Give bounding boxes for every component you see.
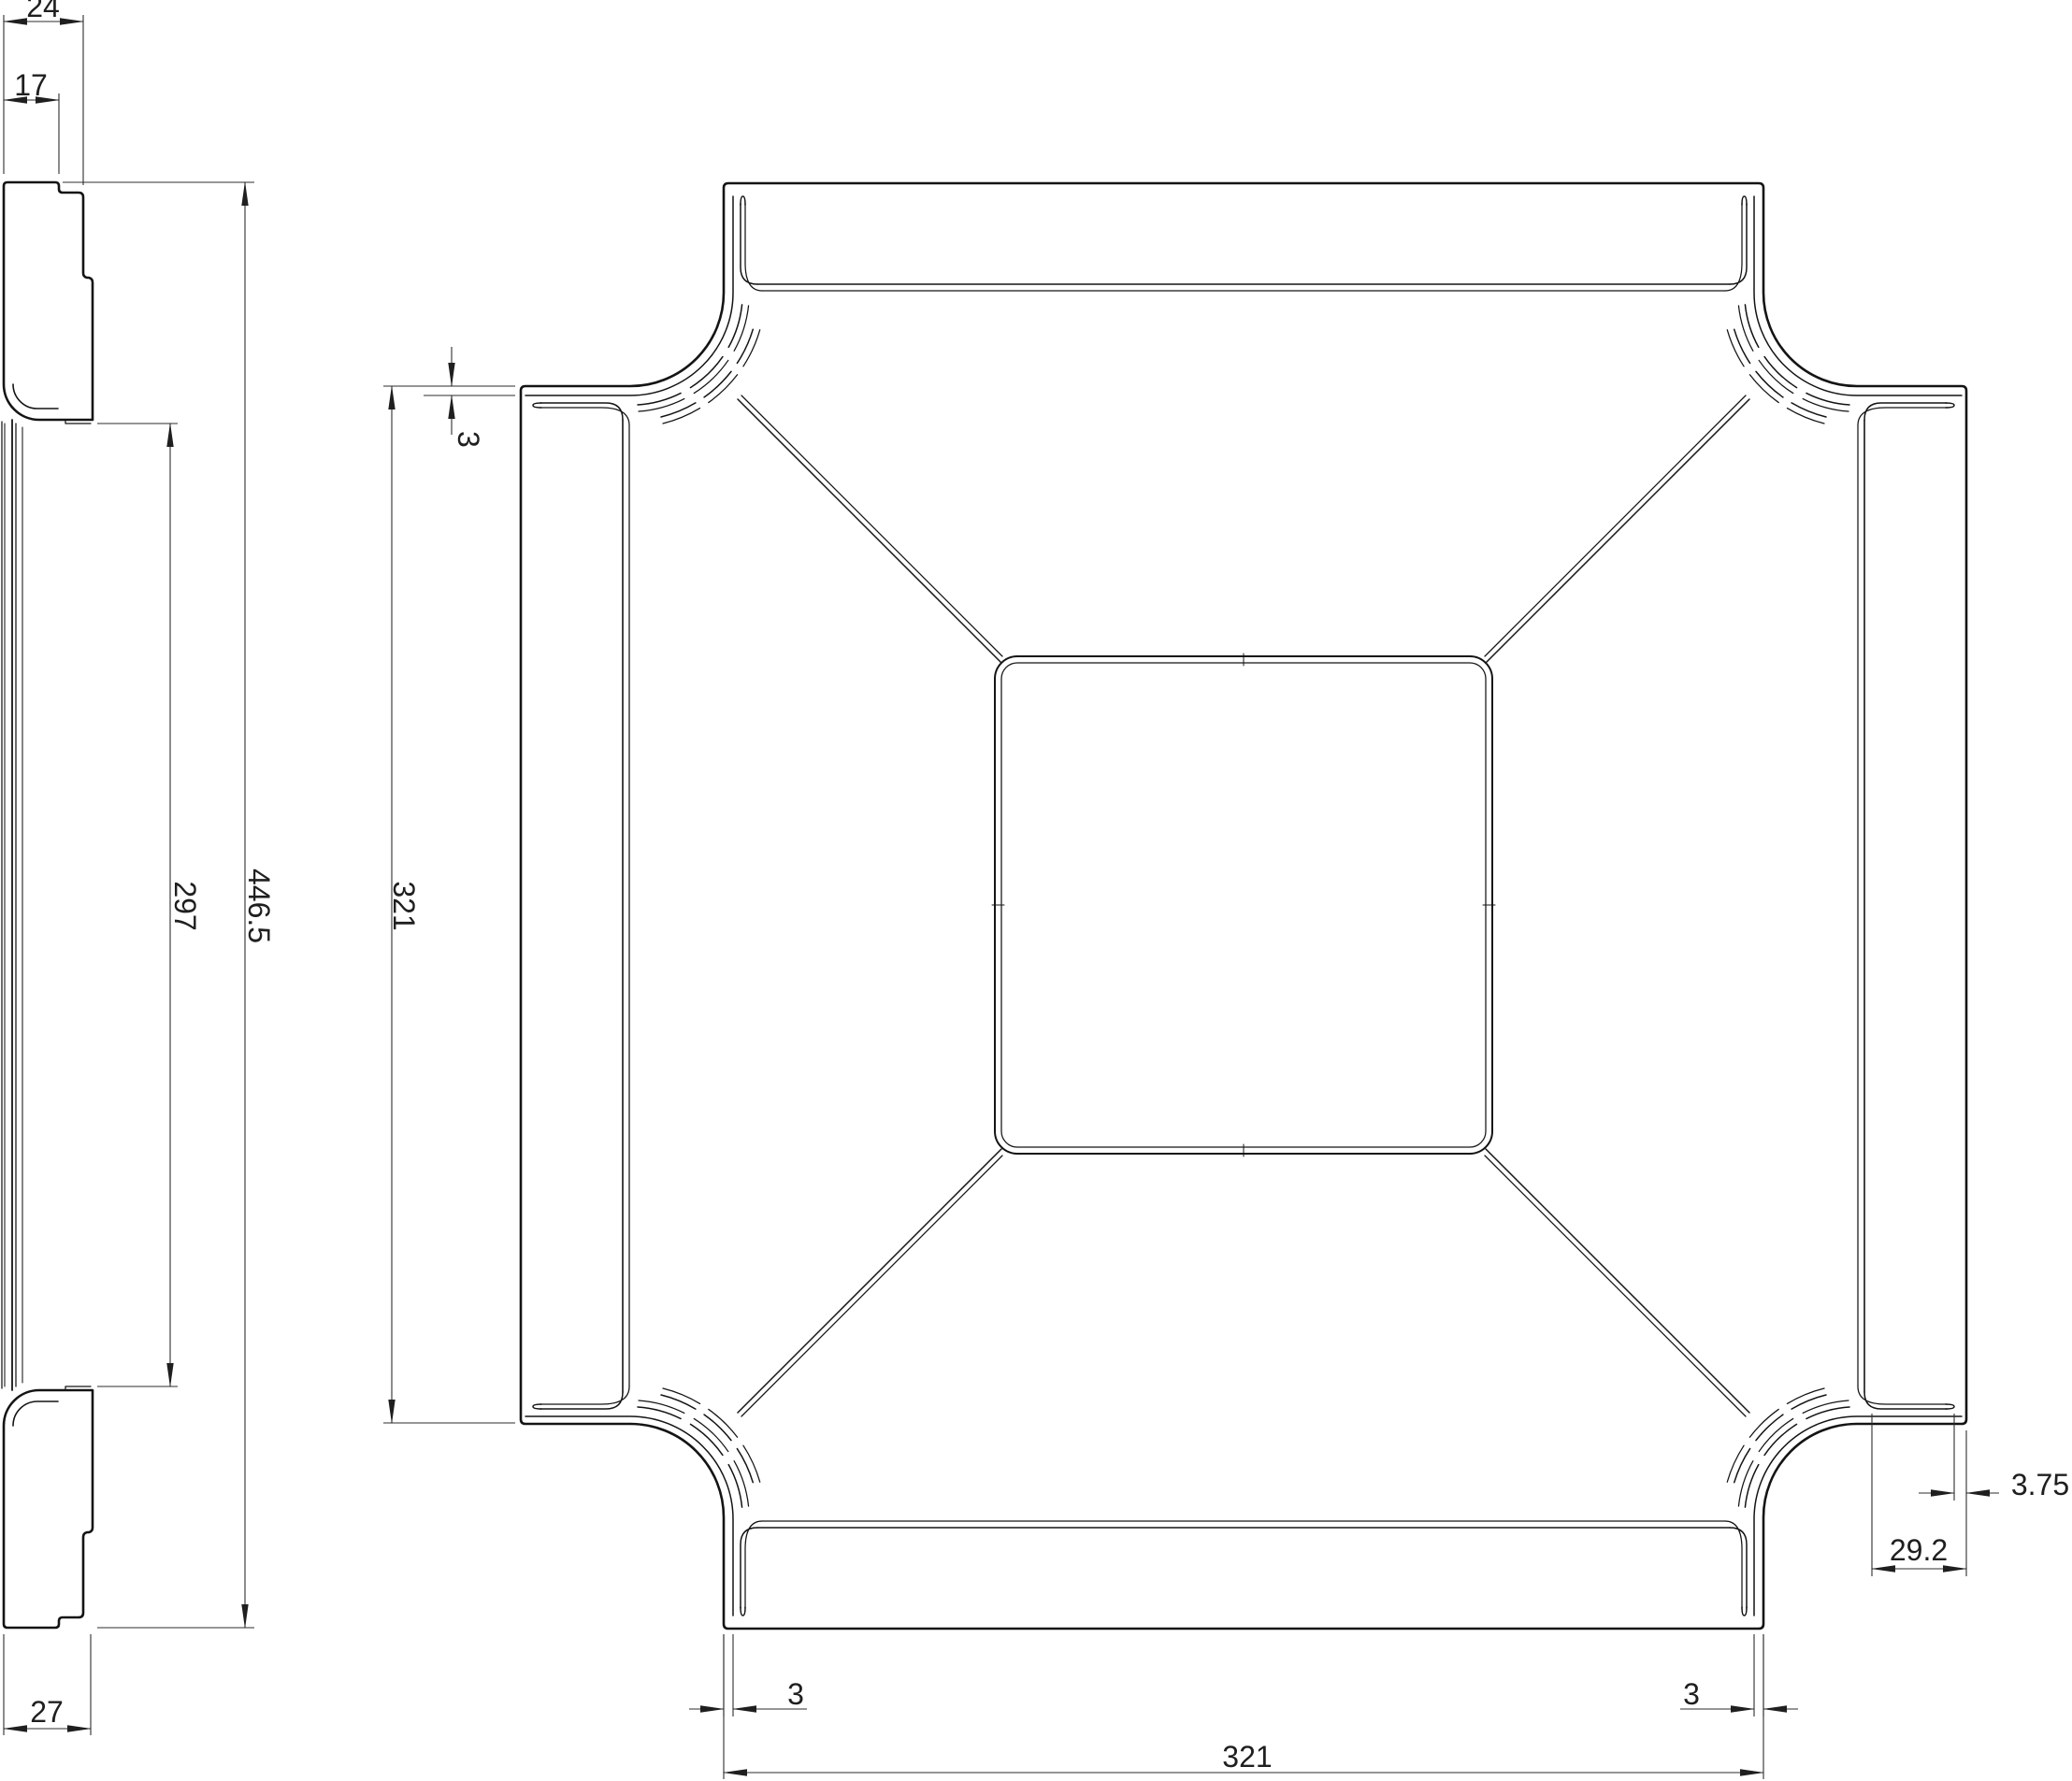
dimension-27: 27	[4, 1634, 91, 1735]
dim-label-27: 27	[30, 1695, 64, 1729]
dimension-3-bottom-right: 3	[1680, 1634, 1798, 1716]
corner-flange-band	[638, 300, 742, 405]
dim-label-297: 297	[168, 881, 202, 930]
corner-detail-top-right	[1485, 196, 1962, 663]
dim-label-3-bottom-right: 3	[1683, 1677, 1700, 1711]
dimension-17: 17	[4, 68, 59, 174]
dim-label-24: 24	[26, 0, 60, 23]
dimension-321-bottom: 321	[724, 1634, 1763, 1779]
bend-tangent-arc	[13, 384, 58, 409]
side-view-bottom-flange	[4, 1386, 93, 1628]
wall-thickness-line	[525, 196, 733, 395]
dim-label-3-top: 3	[452, 431, 485, 448]
dimension-29-2: 29.2	[1872, 1414, 1966, 1576]
dim-label-29-2: 29.2	[1890, 1533, 1948, 1567]
dim-label-3-75: 3.75	[2011, 1468, 2069, 1501]
corner-detail-top-left	[525, 196, 1002, 663]
dim-label-321-left: 321	[387, 881, 421, 930]
dimension-297: 297	[97, 424, 202, 1386]
floor-bend-diagonal	[738, 399, 1001, 663]
dim-label-3-bottom-left: 3	[787, 1677, 804, 1711]
technical-drawing-canvas: 24 17 446.5 297 27 3 321 3.75	[0, 0, 2072, 1781]
corner-detail-bottom-left	[525, 1149, 1002, 1616]
dim-label-17: 17	[14, 68, 48, 102]
dim-label-321-bottom: 321	[1222, 1740, 1272, 1774]
dimension-3-bottom-left: 3	[689, 1634, 807, 1716]
dimension-321-left: 321	[383, 386, 515, 1423]
drawing-sheet: 24 17 446.5 297 27 3 321 3.75	[0, 0, 2072, 1781]
dimension-3-top-left: 3	[383, 347, 515, 448]
side-view	[2, 182, 93, 1628]
hem-cap	[741, 196, 745, 205]
hem-cap	[533, 403, 541, 408]
central-square	[992, 654, 1495, 1156]
side-view-top-flange	[4, 182, 93, 424]
plan-view	[521, 183, 1966, 1629]
midpoint-ticks	[992, 654, 1495, 1156]
side-view-web-lines	[2, 420, 22, 1390]
dim-label-446-5: 446.5	[242, 869, 276, 943]
